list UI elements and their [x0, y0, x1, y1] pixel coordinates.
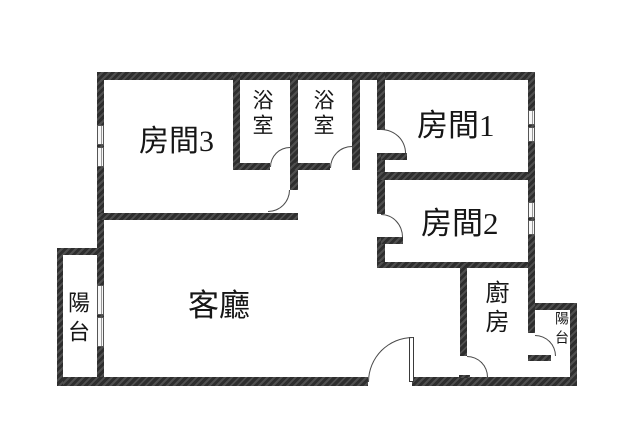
kitchen-left-wall — [460, 263, 467, 356]
room3-window-lower — [97, 147, 104, 167]
kitchen-label: 廚房 — [482, 280, 506, 338]
entrance-door-arc — [368, 337, 413, 382]
wall-left-middle — [97, 167, 104, 285]
room1-room2-divider-wall — [377, 172, 528, 180]
bathroom1-label: 浴室 — [251, 89, 272, 139]
living-room-label: 客廳 — [188, 290, 250, 321]
room2-window-upper — [528, 202, 535, 218]
bathroom1-door-arc — [270, 147, 290, 167]
balcony-right-label: 陽台 — [553, 311, 567, 349]
wall-left-upper — [97, 72, 104, 125]
balcony-left-label: 陽台 — [66, 291, 88, 349]
bathroom2-right-wall — [352, 72, 360, 170]
room3-bottom-wall — [97, 213, 298, 220]
kitchen-door-arc — [467, 356, 488, 377]
living-west-window-upper — [97, 285, 104, 315]
room3-window-upper — [97, 125, 104, 145]
wall-top — [97, 72, 535, 80]
room1-left-wall-upper — [377, 72, 385, 130]
bathroom1-left-wall — [233, 72, 240, 170]
wall-bottom-right — [412, 377, 577, 386]
room1-door-arc — [381, 129, 406, 153]
room3-label: 房間3 — [139, 127, 214, 157]
room1-door-leaf — [381, 153, 407, 160]
balcony-left-outer-wall — [57, 248, 63, 386]
bathroom2-label: 浴室 — [312, 89, 333, 139]
room2-bottom-wall — [377, 262, 528, 268]
bathroom2-bottom-wall — [290, 163, 330, 170]
room1-label: 房間1 — [417, 110, 495, 141]
wall-bottom-left — [57, 377, 368, 386]
bathroom2-door-arc — [330, 146, 352, 168]
living-west-window-lower — [97, 317, 104, 347]
floor-plan-canvas: 房間3 浴室 浴室 房間1 房間2 客廳 廚房 陽台 陽台 — [0, 0, 640, 441]
wall-right-upper — [528, 72, 535, 110]
wall-right-lower — [528, 235, 535, 333]
room1-window-lower — [528, 127, 535, 142]
bathroom1-bottom-wall — [233, 163, 270, 170]
room2-label: 房間2 — [421, 208, 499, 239]
room2-door-arc — [381, 214, 403, 237]
room1-left-wall-lower — [377, 153, 385, 214]
room3-door-arc — [268, 190, 290, 212]
wall-right-middle — [528, 142, 535, 202]
room2-window-lower — [528, 220, 535, 235]
balcony-left-top-wall — [57, 248, 103, 255]
room1-window-upper — [528, 110, 535, 125]
balcony-right-outer-wall — [570, 303, 577, 386]
bathroom-divider-wall — [290, 72, 298, 190]
room2-door-leaf — [381, 237, 403, 244]
